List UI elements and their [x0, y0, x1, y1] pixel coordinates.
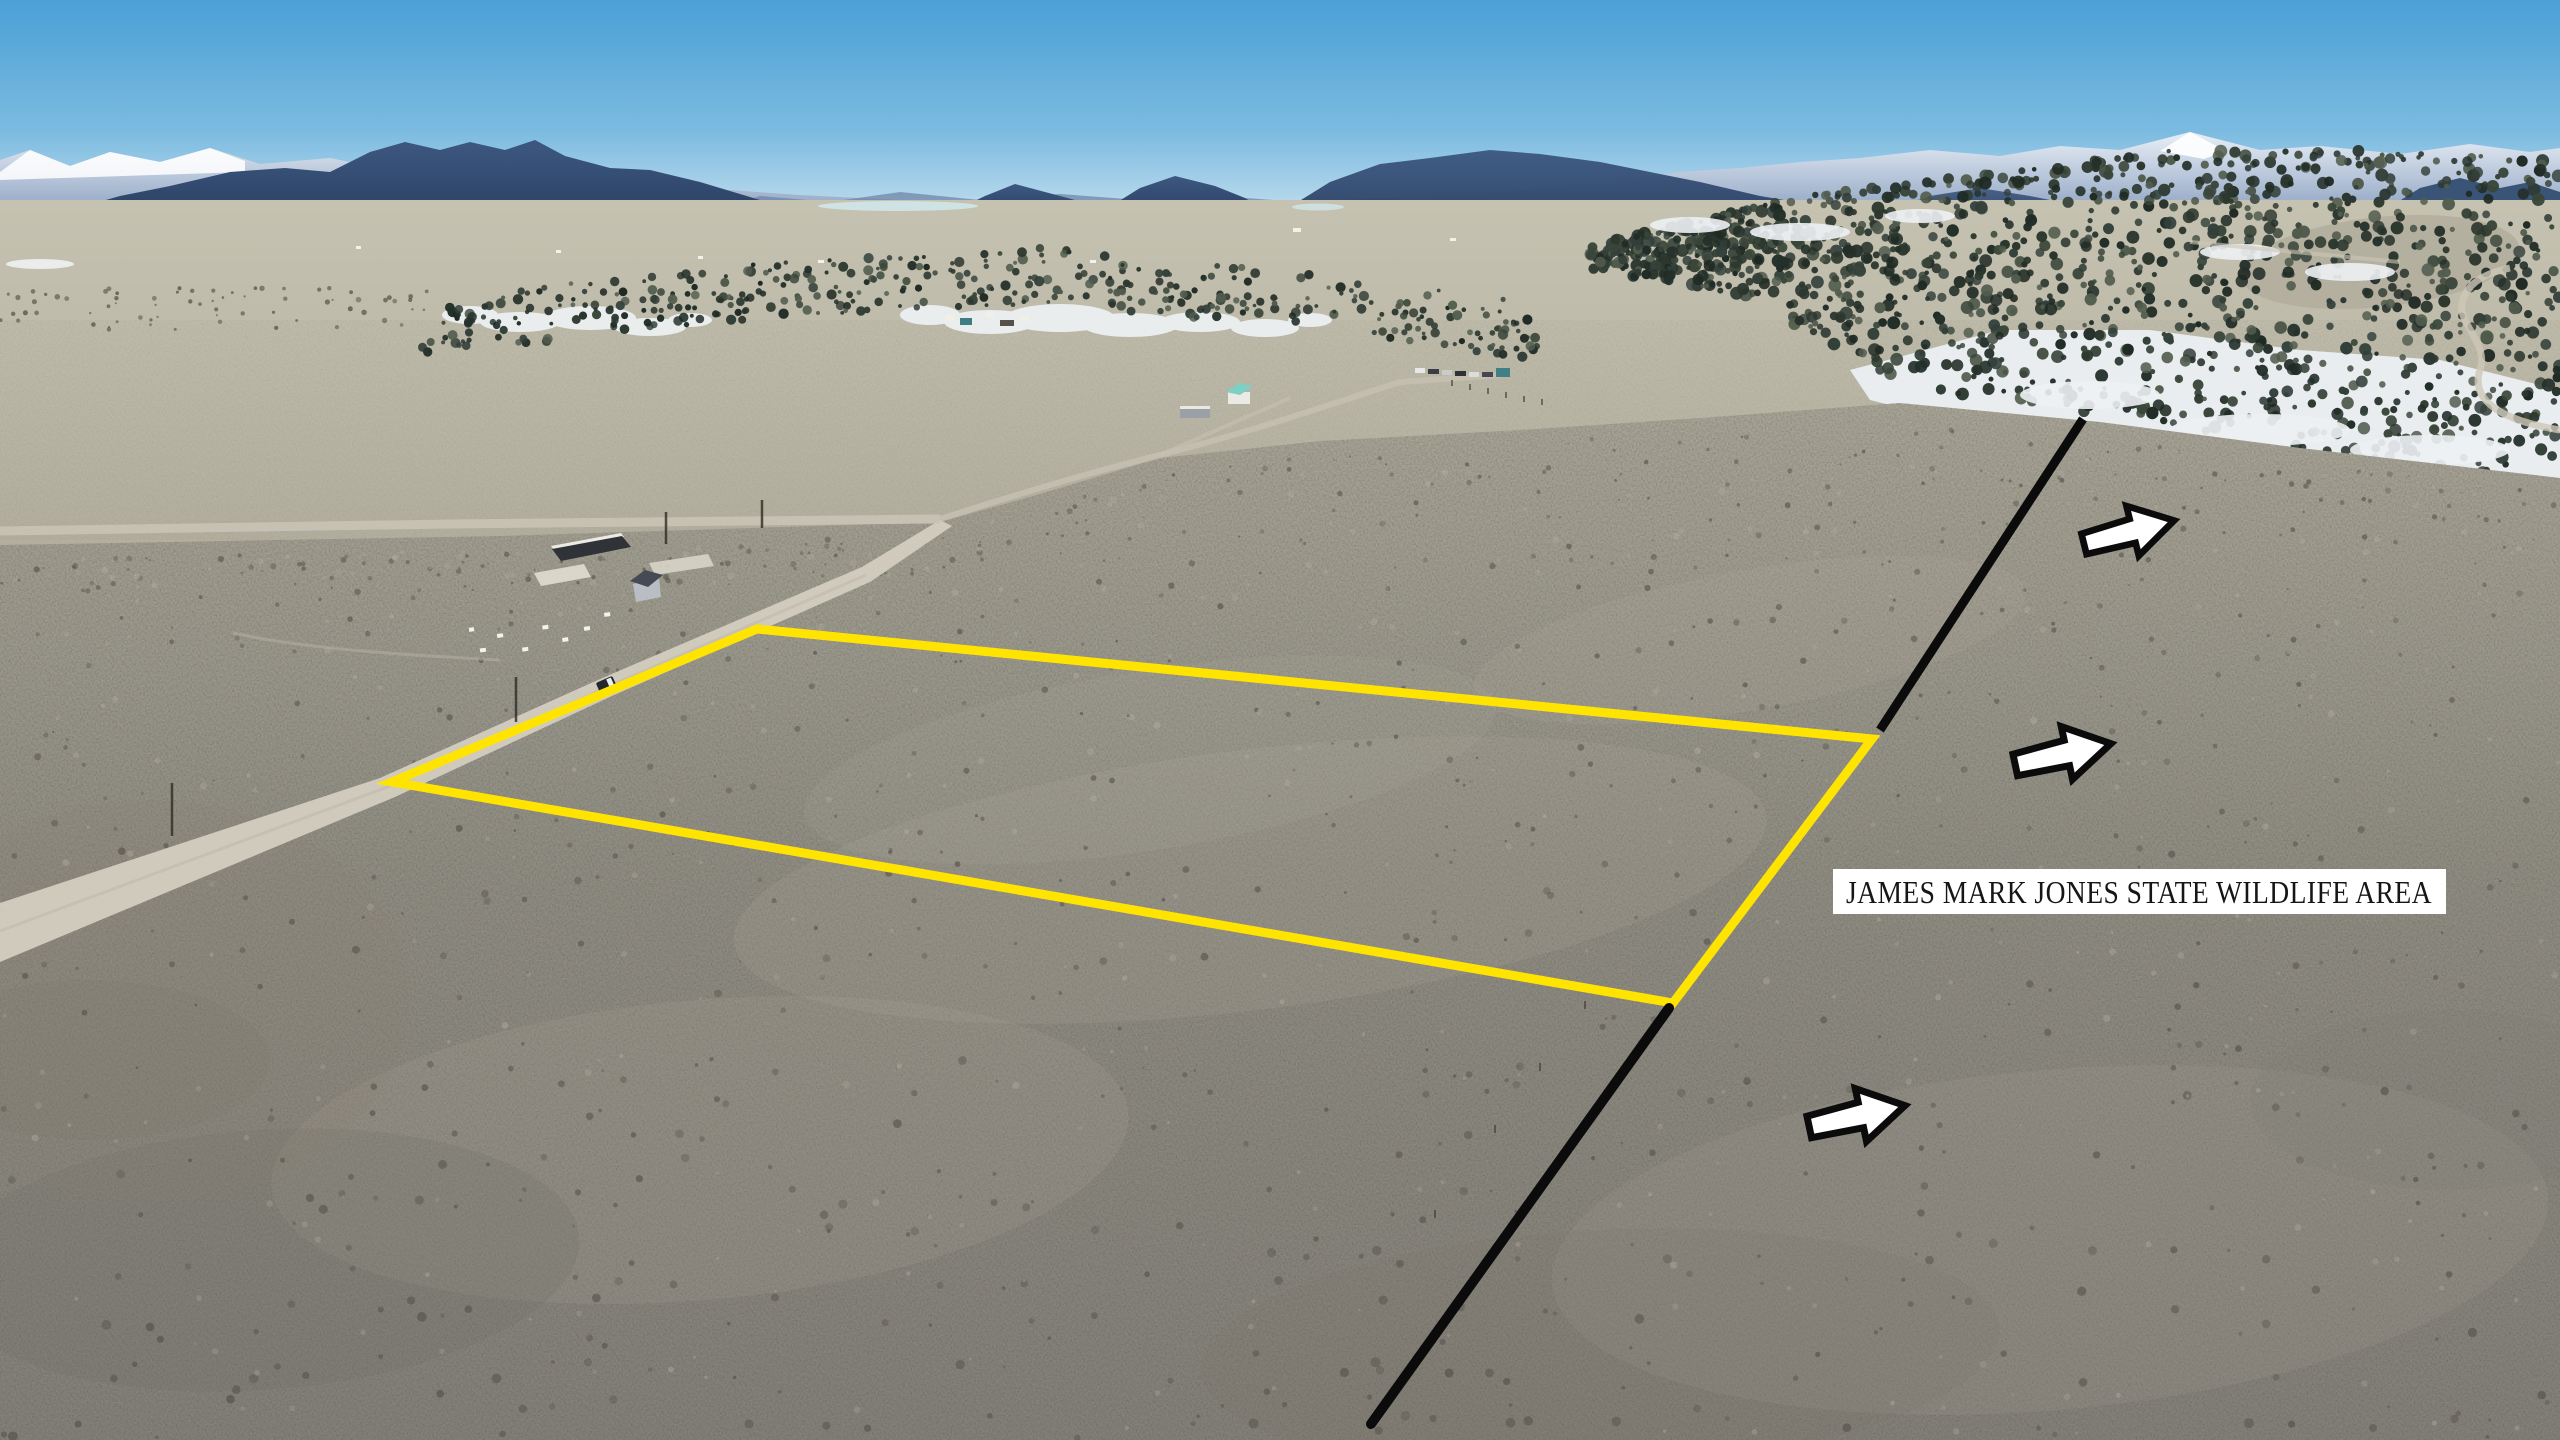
distant-pond: [1292, 204, 1344, 211]
aerial-photo: JAMES MARK JONES STATE WILDLIFE AREA: [0, 0, 2560, 1440]
aerial-photo-canvas: JAMES MARK JONES STATE WILDLIFE AREA: [0, 0, 2560, 1440]
snow-strip: [6, 259, 74, 269]
distant-lake: [818, 201, 978, 211]
wildlife-area-label: JAMES MARK JONES STATE WILDLIFE AREA: [1846, 874, 2432, 910]
